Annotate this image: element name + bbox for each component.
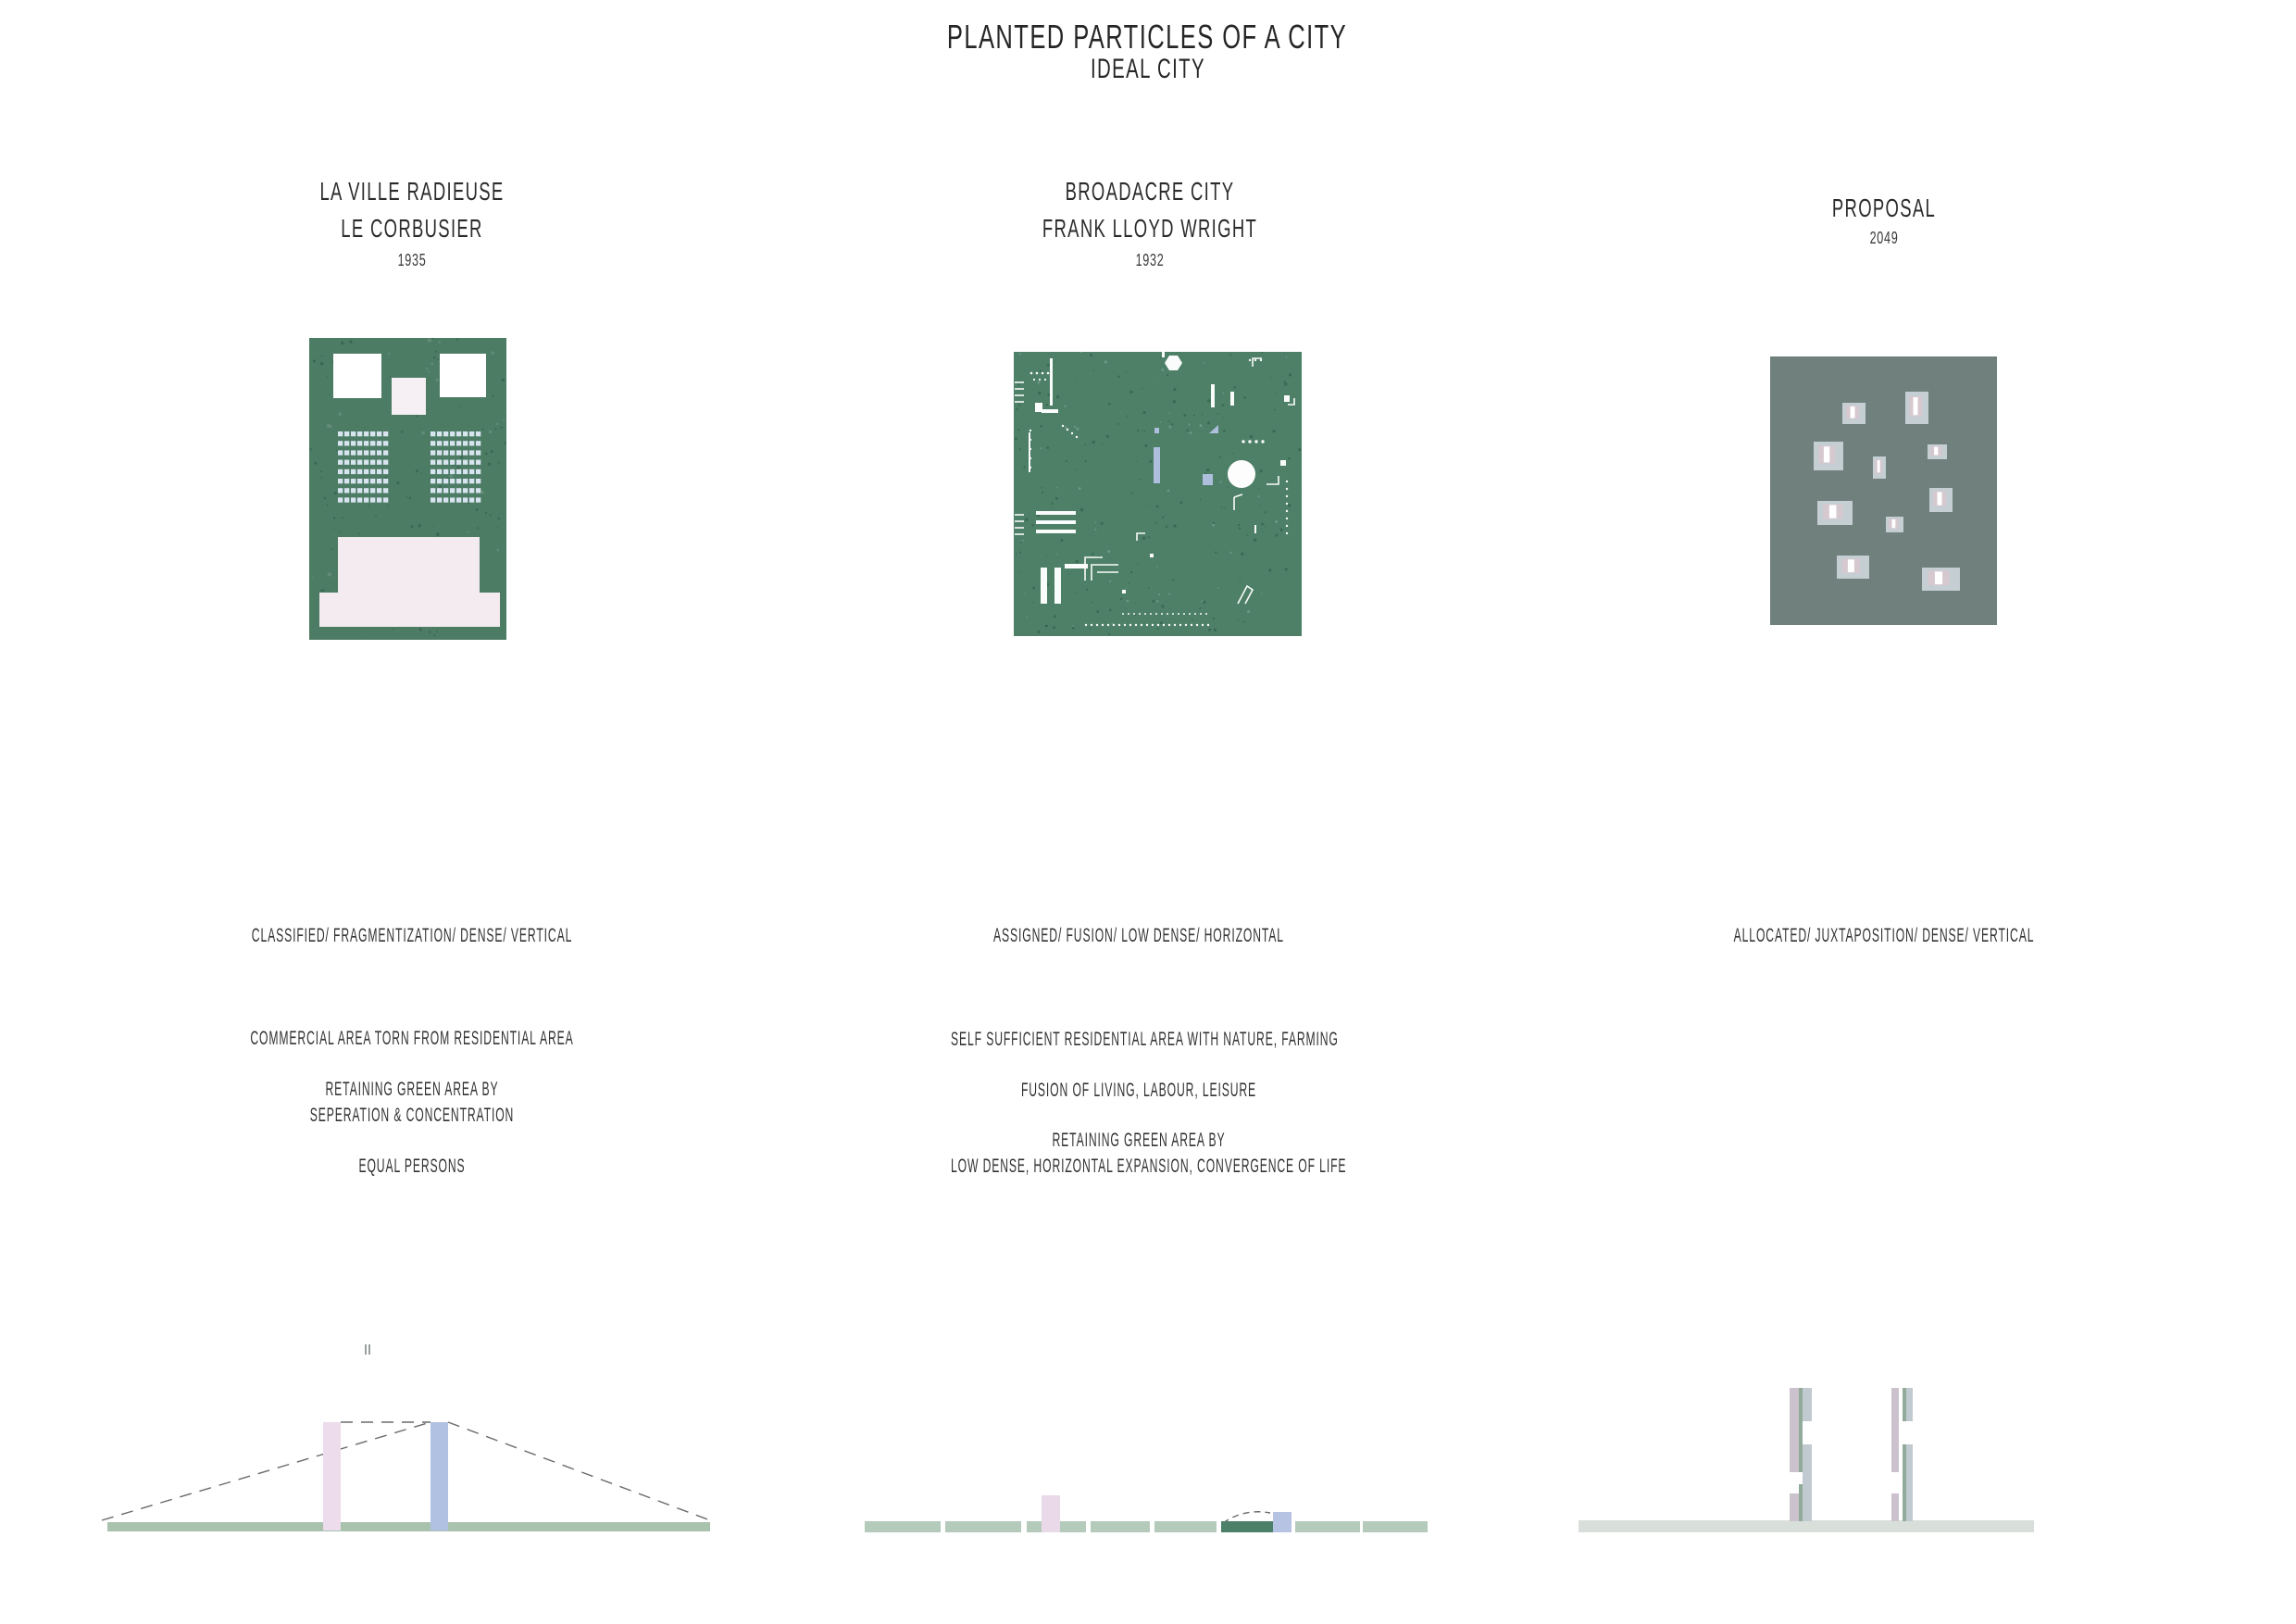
column1-year: 1935 — [185, 252, 639, 269]
column2-note: SELF SUFFICIENT RESIDENTIAL AREA WITH NA… — [951, 1030, 1327, 1049]
column1-note: COMMERCIAL AREA TORN FROM RESIDENTIAL AR… — [224, 1029, 600, 1048]
column2-tags: ASSIGNED/ FUSION/ LOW DENSE/ HORIZONTAL — [951, 926, 1327, 945]
column1-architect: LE CORBUSIER — [198, 216, 626, 242]
column2-note: LOW DENSE, HORIZONTAL EXPANSION, CONVERG… — [951, 1156, 1327, 1176]
column1-note: RETAINING GREEN AREA BY — [224, 1080, 600, 1099]
poster-title: PLANTED PARTICLES OF A CITY — [917, 20, 1378, 54]
poster-board: PLANTED PARTICLES OF A CITY IDEAL CITY L… — [0, 0, 2296, 1624]
column3-year: 2049 — [1657, 230, 2111, 246]
column3-tags: ALLOCATED/ JUXTAPOSITION/ DENSE/ VERTICA… — [1696, 926, 2072, 945]
column1-note: SEPERATION & CONCENTRATION — [224, 1106, 600, 1125]
poster-subtitle: IDEAL CITY — [928, 56, 1368, 83]
column1-tags: CLASSIFIED/ FRAGMENTIZATION/ DENSE/ VERT… — [224, 926, 600, 945]
column1-title: LA VILLE RADIEUSE — [198, 179, 626, 205]
column2-note: RETAINING GREEN AREA BY — [951, 1131, 1327, 1150]
column3-title: PROPOSAL — [1670, 195, 2098, 221]
column2-title: BROADACRE CITY — [936, 179, 1364, 205]
section-diagram-la-ville-radieuse — [93, 1333, 722, 1546]
column2-architect: FRANK LLOYD WRIGHT — [936, 216, 1364, 242]
column2-note: FUSION OF LIVING, LABOUR, LEISURE — [951, 1081, 1327, 1100]
column2-year: 1932 — [923, 252, 1377, 269]
column1-note: EQUAL PERSONS — [224, 1156, 600, 1176]
plan-la-ville-radieuse — [309, 338, 506, 640]
plan-broadacre-city — [1014, 352, 1302, 636]
section-diagram-broadacre-city — [852, 1481, 1444, 1546]
section-diagram-proposal — [1574, 1380, 2037, 1542]
plan-proposal — [1770, 356, 1997, 625]
